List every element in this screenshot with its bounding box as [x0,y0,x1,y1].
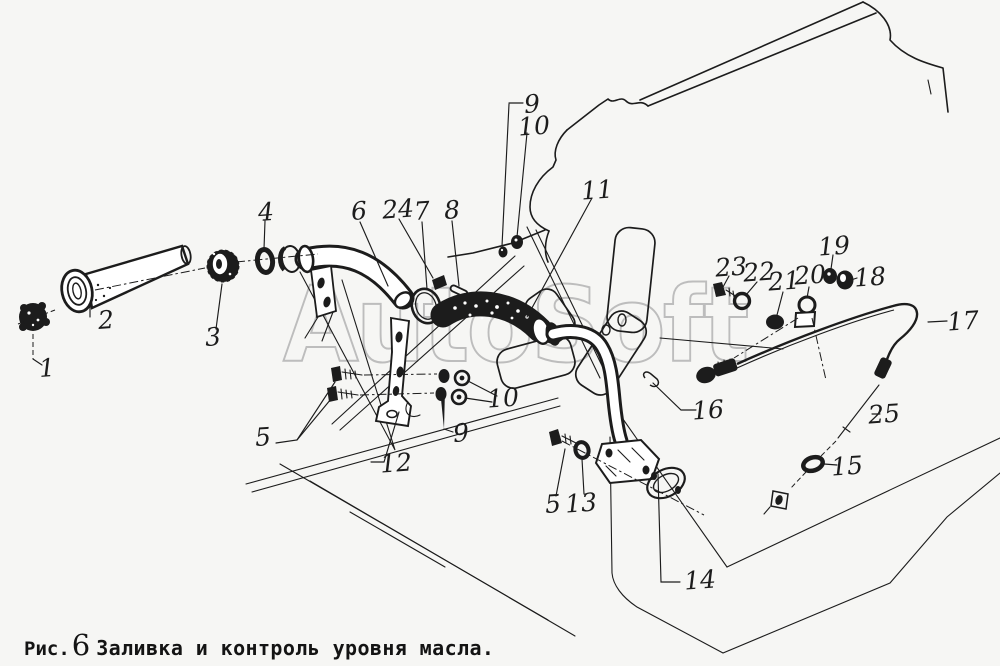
part-20-clamp [734,297,826,380]
part-3-cap [207,250,239,282]
leader-lines [33,103,947,582]
caption-title: Заливка и контроль уровня масла. [96,636,494,660]
part-1-cap [19,302,50,331]
part-19-nut [823,268,837,284]
diagram-canvas [0,0,1000,666]
frame-rails [246,398,575,636]
parts-9-10-middle [436,369,470,404]
dipstick-end-flag [764,491,788,514]
part-16-tube [543,321,659,483]
oil-pan-outline [610,412,1000,653]
figure-page: AutoSoft [0,0,1000,666]
part-2-filler-neck [58,245,192,314]
part-12-bracket [376,318,420,426]
part-15-ring [790,441,836,489]
part-5-bolts-left [327,366,437,402]
part-21-nut [766,315,784,330]
caption-number: 6 [72,628,90,662]
figure-caption: Рис. 6 Заливка и контроль уровня масла. [24,628,494,662]
part-22-washer [735,294,750,309]
part-11-hose [443,300,552,346]
part-24-wedge [432,275,447,290]
caption-prefix: Рис. [24,638,70,660]
